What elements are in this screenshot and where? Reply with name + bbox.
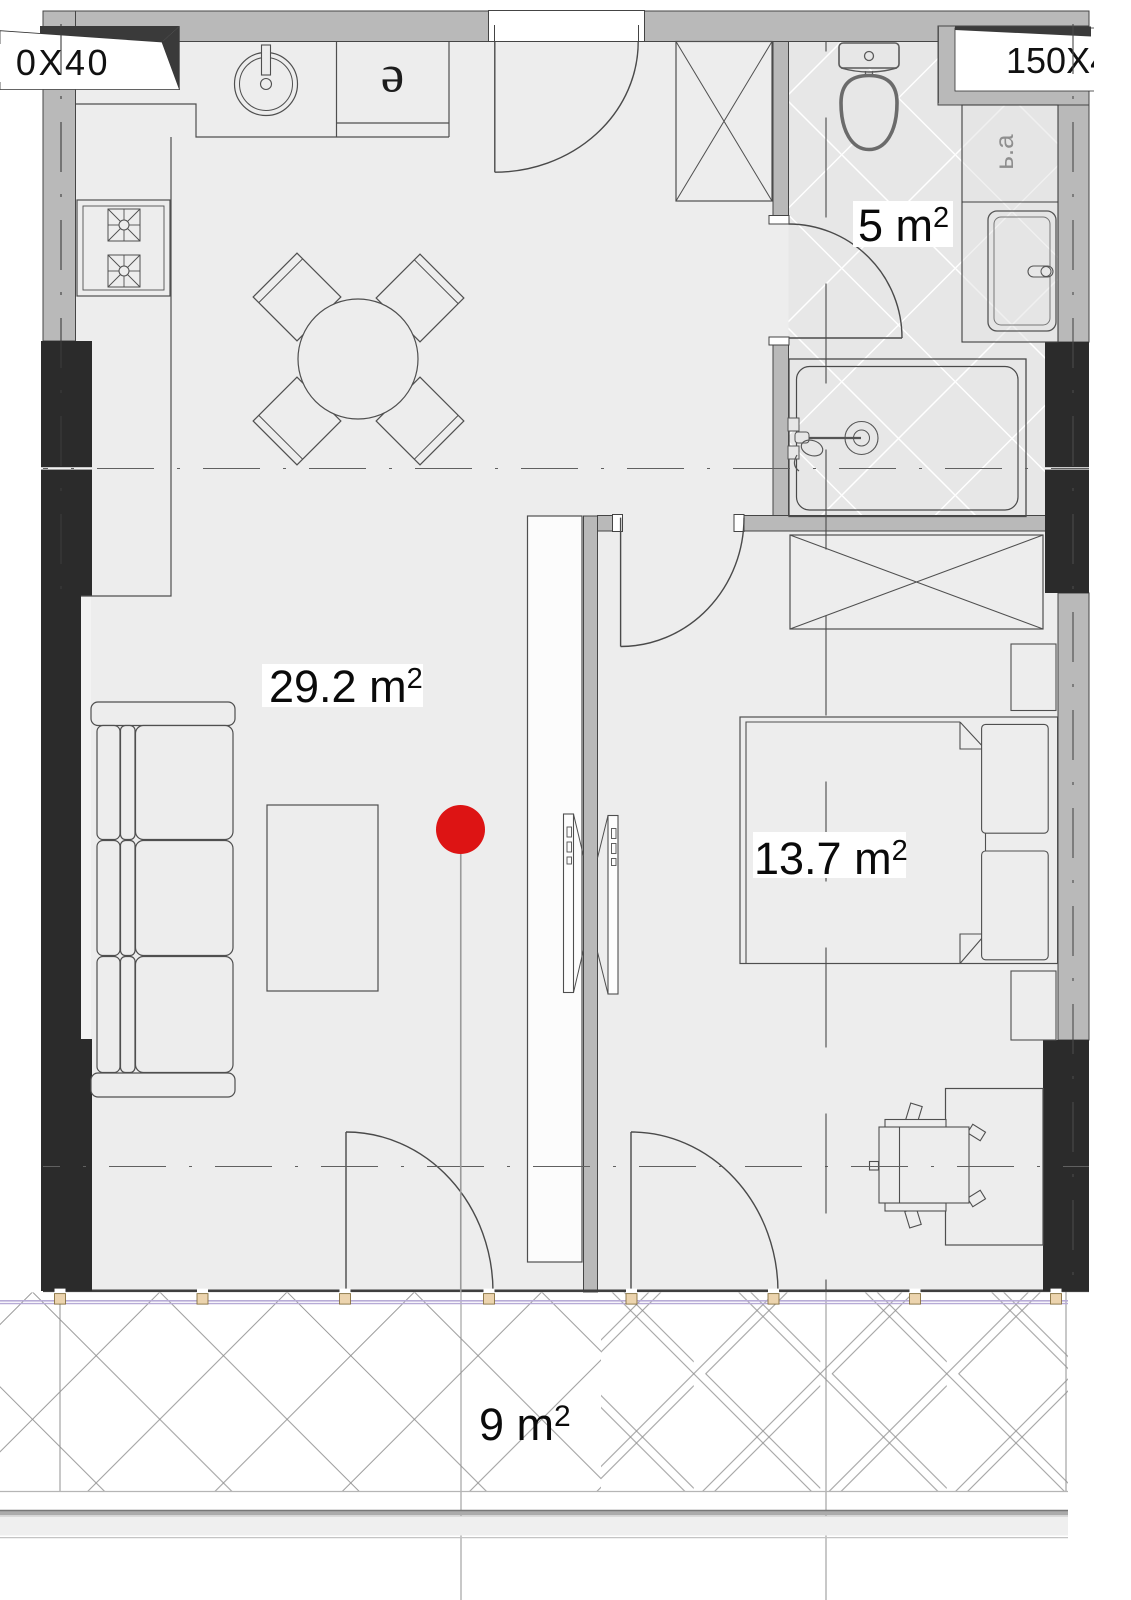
- svg-text:е: е: [381, 55, 405, 113]
- svg-text:13.7 m2: 13.7 m2: [754, 833, 908, 884]
- svg-text:ь.а: ь.а: [989, 134, 1019, 170]
- svg-text:29.2 m2: 29.2 m2: [269, 661, 423, 712]
- svg-text:0X40: 0X40: [16, 42, 110, 83]
